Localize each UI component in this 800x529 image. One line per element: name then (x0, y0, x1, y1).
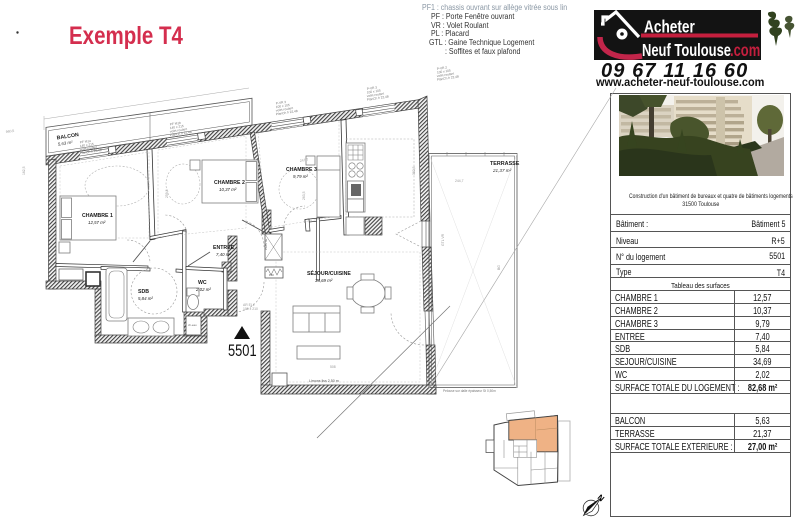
svg-text:34,69 m²: 34,69 m² (315, 278, 333, 283)
svg-text:5,63 m²: 5,63 m² (57, 139, 73, 146)
svg-text:CHAMBRE 2: CHAMBRE 2 (214, 180, 245, 186)
svg-text:CHAMBRE 3: CHAMBRE 3 (286, 167, 317, 173)
svg-text:10,37 m²: 10,37 m² (219, 187, 237, 192)
svg-text:382,5: 382,5 (412, 166, 416, 175)
svg-text:F60: F60 (269, 273, 274, 277)
svg-text:12,57 m²: 12,57 m² (88, 220, 106, 225)
svg-text:162,5: 162,5 (22, 166, 26, 175)
svg-text:508: 508 (330, 365, 336, 369)
svg-text:BG: BG (497, 265, 501, 270)
svg-text:TERRASSE: TERRASSE (490, 161, 520, 167)
svg-text:263,5: 263,5 (302, 191, 306, 200)
svg-text:ch-eau: ch-eau (188, 323, 197, 327)
svg-text:CHAMBRE 1: CHAMBRE 1 (82, 213, 113, 219)
svg-text:5501: 5501 (228, 343, 257, 361)
svg-text:Pelouse sur dalle épaisseur St: Pelouse sur dalle épaisseur St 0,50m (443, 389, 496, 393)
svg-text:PL/B.TE: PL/B.TE (264, 239, 268, 250)
svg-text:21,37 m²: 21,37 m² (492, 168, 512, 173)
svg-text:SDB: SDB (138, 289, 149, 295)
svg-text:244,7: 244,7 (455, 179, 464, 183)
svg-text:Limons liss 2,50 m: Limons liss 2,50 m (309, 379, 339, 383)
svg-text:7,40 m²: 7,40 m² (216, 252, 231, 257)
svg-text:100 x 210: 100 x 210 (243, 307, 258, 311)
svg-text:SÉJOUR/CUISINE: SÉJOUR/CUISINE (307, 269, 351, 277)
svg-text:WC: WC (198, 280, 207, 286)
svg-text:2,02 m²: 2,02 m² (195, 287, 211, 292)
svg-text:GTL VR: GTL VR (441, 233, 445, 246)
svg-text:259,5: 259,5 (165, 189, 169, 198)
svg-text:9,79 m²: 9,79 m² (293, 174, 308, 179)
svg-text:5,84 m²: 5,84 m² (138, 296, 153, 301)
svg-text:ENTRÉE: ENTRÉE (213, 243, 235, 251)
svg-text:960,5: 960,5 (6, 129, 15, 134)
